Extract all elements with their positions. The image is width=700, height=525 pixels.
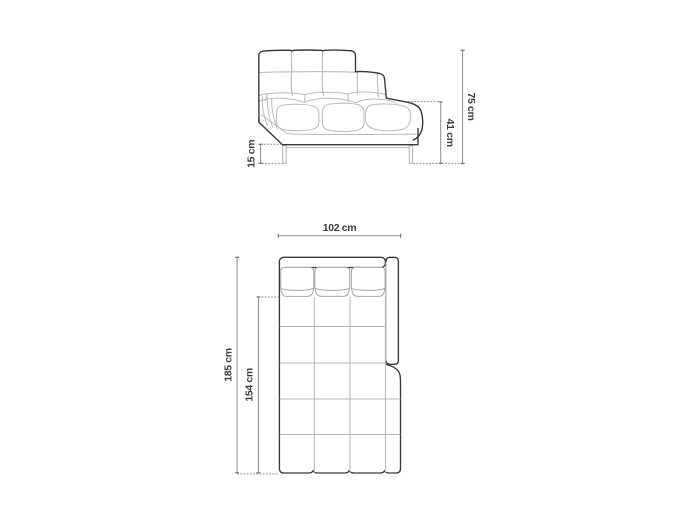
svg-text:15 cm: 15 cm: [245, 140, 257, 168]
svg-text:102 cm: 102 cm: [323, 222, 357, 234]
svg-text:154 cm: 154 cm: [244, 368, 256, 402]
svg-text:41 cm: 41 cm: [444, 119, 456, 147]
svg-text:185 cm: 185 cm: [223, 348, 235, 382]
svg-text:75 cm: 75 cm: [465, 92, 477, 120]
